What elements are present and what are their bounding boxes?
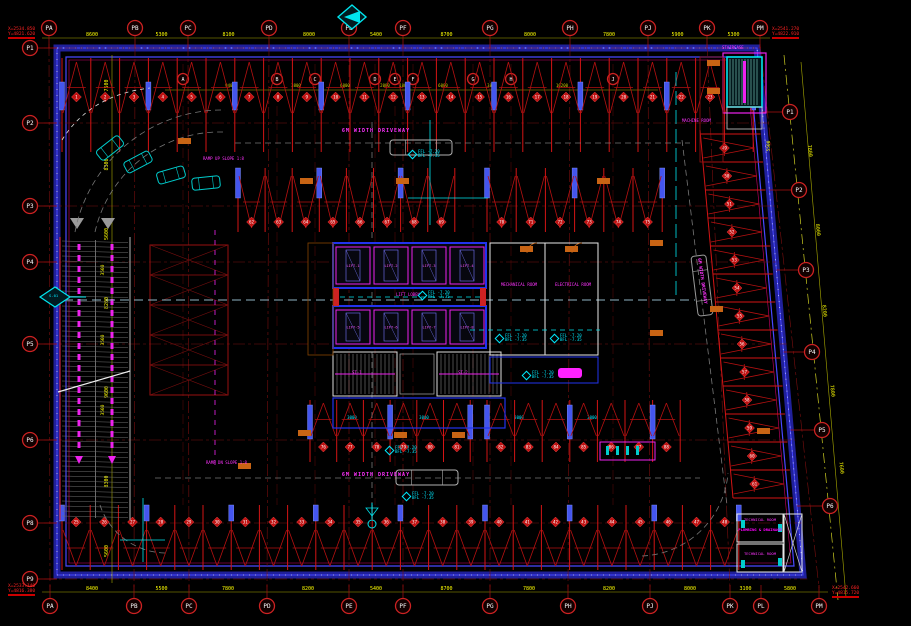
label: 86 xyxy=(609,445,615,450)
label: 8200 xyxy=(603,586,615,592)
car-window xyxy=(696,299,711,301)
label: 62 xyxy=(249,220,255,225)
label: 57 xyxy=(742,370,748,375)
label: P9 xyxy=(26,576,34,583)
label: 8200 xyxy=(302,586,314,592)
label: PK xyxy=(703,25,711,32)
turning-arc xyxy=(75,110,225,232)
door-mark xyxy=(298,430,311,436)
ramp-tread xyxy=(62,416,128,418)
ramp-tread xyxy=(62,246,128,248)
label: PM xyxy=(756,25,764,32)
ramp-tread xyxy=(62,396,128,398)
label: 59 xyxy=(747,426,753,431)
car-body xyxy=(390,140,452,155)
column xyxy=(578,82,583,110)
label: PG xyxy=(486,603,494,610)
column xyxy=(664,82,669,110)
ramp-arrow-dash xyxy=(78,420,81,426)
label: P1 xyxy=(786,109,794,116)
label: 75 xyxy=(645,220,651,225)
ramp-arrow-dash xyxy=(111,431,114,437)
ramp-tread xyxy=(62,316,128,318)
label: 23 xyxy=(707,95,713,100)
ramp-arrow-dash xyxy=(78,365,81,371)
label: 5500 xyxy=(766,140,772,151)
ramp-tread xyxy=(62,476,128,478)
label: 44 xyxy=(609,520,615,525)
ramp-tread xyxy=(62,401,128,403)
ramp-tread xyxy=(62,251,128,253)
grid-line-PA xyxy=(49,44,50,588)
label: 53 xyxy=(732,258,738,263)
ramp-tread xyxy=(62,391,128,393)
label: 8200 xyxy=(820,305,827,318)
label: 84 xyxy=(553,445,559,450)
label: 3500 xyxy=(100,334,106,345)
grid-line-PC xyxy=(188,44,189,588)
label: 78 xyxy=(374,445,380,450)
label: 28 xyxy=(158,520,164,525)
ramp-arrow-dash xyxy=(78,310,81,316)
ramp-tread xyxy=(62,326,128,328)
label: 70 xyxy=(499,220,505,225)
label: P8 xyxy=(26,520,34,527)
door-mark xyxy=(520,246,533,252)
label: PB xyxy=(130,603,138,610)
hatch xyxy=(706,166,757,176)
grid-line-PJ xyxy=(648,44,650,588)
label: 5900 xyxy=(671,32,683,38)
label: 71 xyxy=(528,220,534,225)
ramp-tread xyxy=(62,361,128,363)
pump-room-block xyxy=(700,57,723,162)
label: PH xyxy=(566,25,574,32)
hatch xyxy=(708,194,759,204)
fixture xyxy=(636,446,639,455)
ramp-arrow-dash xyxy=(111,288,114,294)
car-window xyxy=(112,139,119,148)
hatch xyxy=(703,148,754,158)
label: 21 xyxy=(650,95,656,100)
label: 11 xyxy=(362,95,368,100)
ramp-tread xyxy=(62,481,128,483)
cad-viewport[interactable]: 8600530081008000540087008000780059005300… xyxy=(0,0,911,626)
label: PF xyxy=(399,25,407,32)
car-symbol xyxy=(191,176,220,191)
label: 5600 xyxy=(104,228,110,240)
label: 10 xyxy=(333,95,339,100)
label: 37 xyxy=(412,520,418,525)
label: 20 xyxy=(621,95,627,100)
label: 3500 xyxy=(100,404,106,415)
fixture xyxy=(741,520,745,528)
label: 8700 xyxy=(440,586,452,592)
label: 48 xyxy=(722,520,728,525)
door-mark xyxy=(650,240,663,246)
column xyxy=(60,82,65,110)
turning-arc xyxy=(95,132,223,232)
label: PF xyxy=(399,603,407,610)
stair-landing xyxy=(727,107,762,129)
label: PK xyxy=(726,603,734,610)
storage-lattice xyxy=(150,245,228,395)
column xyxy=(405,82,410,110)
car-symbol xyxy=(156,165,186,184)
ramp-arrow-dash xyxy=(111,244,114,250)
hatch xyxy=(721,344,772,354)
hatch xyxy=(734,474,784,484)
ramp-tread xyxy=(62,501,128,503)
jamb xyxy=(480,288,486,306)
column xyxy=(567,505,572,521)
label: PD xyxy=(265,25,273,32)
label: 3100 xyxy=(739,586,751,592)
label: 8600 xyxy=(86,32,98,38)
ramp-arrow-dash xyxy=(111,266,114,272)
hatch xyxy=(724,362,775,372)
label: PC xyxy=(185,603,193,610)
ramp-arrow-dash xyxy=(111,442,114,448)
car-symbol xyxy=(396,470,458,485)
ramp-tread xyxy=(62,241,128,243)
car-body xyxy=(396,470,458,485)
door-mark xyxy=(710,306,723,312)
label: 5800 xyxy=(784,586,796,592)
label: 5600 xyxy=(104,545,110,557)
label: PB xyxy=(131,25,139,32)
service-shafts xyxy=(308,243,333,355)
label: 79 xyxy=(401,445,407,450)
label: 76 xyxy=(321,445,327,450)
label: PJ xyxy=(644,25,651,32)
label: 52 xyxy=(729,230,735,235)
label: 39 xyxy=(468,520,474,525)
label: P4 xyxy=(808,349,816,356)
ramp-arrow-dash xyxy=(111,343,114,349)
column xyxy=(398,505,403,521)
label: 16 xyxy=(506,95,512,100)
label: 63 xyxy=(276,220,282,225)
label: 65 xyxy=(330,220,336,225)
ramp-tread xyxy=(62,431,128,433)
ramp-arrow-dash xyxy=(78,277,81,283)
door-mark xyxy=(300,178,313,184)
label: 22 xyxy=(679,95,685,100)
hatch xyxy=(706,176,757,186)
ramp-arrow-dash xyxy=(78,442,81,448)
ramp-tread xyxy=(62,436,128,438)
parking-row-inner-bottom-b: 82838485868788 xyxy=(485,400,681,462)
label: 64 xyxy=(303,220,309,225)
label: 85 xyxy=(581,445,587,450)
ramp-tread xyxy=(62,331,128,333)
ramp-arrow-dash xyxy=(111,321,114,327)
label: 8000 xyxy=(814,224,821,237)
ramp-tread xyxy=(62,341,128,343)
ramp-tread xyxy=(62,271,128,273)
door-mark xyxy=(565,246,578,252)
label: 50 xyxy=(724,174,730,179)
ramp-tread xyxy=(62,366,128,368)
ramp-arrow-dash xyxy=(78,409,81,415)
ramp-arrow-dash xyxy=(111,310,114,316)
centerline-right xyxy=(682,140,727,505)
ramp-tread xyxy=(62,266,128,268)
ramp-tread xyxy=(62,496,128,498)
label: 7800 xyxy=(828,385,835,398)
ramp-tread xyxy=(62,461,128,463)
label: 74 xyxy=(616,220,622,225)
ramp-arrow-dash xyxy=(111,277,114,283)
car-symbol xyxy=(691,255,713,316)
label: 42 xyxy=(553,520,559,525)
door-mark xyxy=(396,178,409,184)
ramp-arrow-dash xyxy=(78,343,81,349)
label: D xyxy=(373,77,376,83)
ramp-arrow-dash xyxy=(78,255,81,261)
ramp-tread xyxy=(62,301,128,303)
ramp-tread xyxy=(62,471,128,473)
label: 56 xyxy=(739,342,745,347)
label: P2 xyxy=(795,187,803,194)
ramp-tread xyxy=(62,321,128,323)
label: 19 xyxy=(592,95,598,100)
ramp-arrow-dash xyxy=(78,387,81,393)
door-mark xyxy=(650,330,663,336)
label: 35 xyxy=(356,520,362,525)
label: 82 xyxy=(498,445,504,450)
hatch xyxy=(726,390,776,400)
column xyxy=(485,168,490,198)
label: 38 xyxy=(440,520,446,525)
car-window xyxy=(163,171,166,183)
label: PM xyxy=(815,603,823,610)
label: 72 xyxy=(557,220,563,225)
label: 8000 xyxy=(303,32,315,38)
car-window xyxy=(176,167,179,179)
label: 60 xyxy=(750,454,756,459)
label: 81 xyxy=(454,445,460,450)
label: 5300 xyxy=(155,32,167,38)
label: PC xyxy=(184,25,192,32)
basement-floor-plan: 8600530081008000540087008000780059005300… xyxy=(0,0,911,626)
label: P6 xyxy=(26,437,34,444)
hatch xyxy=(729,428,779,438)
label: 67 xyxy=(385,220,391,225)
door-mark xyxy=(757,428,770,434)
label: E xyxy=(393,77,396,83)
column xyxy=(660,168,665,198)
label: 69 xyxy=(439,220,445,225)
car-window xyxy=(212,176,213,188)
hatch xyxy=(718,306,769,316)
car-body xyxy=(95,135,124,162)
label: 40 xyxy=(497,520,503,525)
label: 26 xyxy=(102,520,108,525)
core-corridor xyxy=(333,398,505,428)
fixture xyxy=(606,446,609,455)
hatch xyxy=(711,222,762,232)
door-mark xyxy=(707,60,720,66)
label: LIFT-1 xyxy=(347,264,360,268)
label: 55 xyxy=(737,314,743,319)
label: F xyxy=(411,77,414,83)
ramp-tread xyxy=(62,311,128,313)
car-symbol xyxy=(95,135,124,162)
label: LIFT-2 xyxy=(385,264,398,268)
ramp-arrow-dash xyxy=(111,409,114,415)
car-body xyxy=(156,165,186,184)
column xyxy=(319,82,324,110)
hatch xyxy=(716,288,767,298)
ramp-arrow-dash xyxy=(111,365,114,371)
ramp-tread xyxy=(62,336,128,338)
label: 46 xyxy=(666,520,672,525)
column xyxy=(317,168,322,198)
car-symbol xyxy=(390,140,452,155)
label: 7600 xyxy=(837,462,844,475)
label: C xyxy=(313,77,316,83)
label: 5400 xyxy=(370,586,382,592)
label: P3 xyxy=(26,203,34,210)
parking-row-inner-top-b: 707172737475 xyxy=(485,168,665,232)
ramp-arrow-dash xyxy=(78,398,81,404)
column xyxy=(229,505,234,521)
ramp-tread xyxy=(62,291,128,293)
ramp-tread xyxy=(62,406,128,408)
hatch xyxy=(734,484,784,494)
label: LIFT-3 xyxy=(423,264,436,268)
label: 3500 xyxy=(100,264,106,275)
car-body xyxy=(691,255,713,316)
label: 34 xyxy=(327,520,333,525)
label: 73 xyxy=(587,220,593,225)
grid-line-right-slant xyxy=(784,55,838,600)
ramp-entry-arrow xyxy=(70,218,84,229)
label: PG xyxy=(486,25,494,32)
ramp-arrow-dash xyxy=(111,387,114,393)
label: 51 xyxy=(727,202,733,207)
fixture xyxy=(778,524,782,532)
label: 8100 xyxy=(222,32,234,38)
ramp-arrow-dash xyxy=(78,332,81,338)
ramp-tread xyxy=(62,276,128,278)
label: LIFT-8 xyxy=(461,326,474,330)
ramp-arrow-head xyxy=(75,456,83,464)
label: 36 xyxy=(384,520,390,525)
stair-rail xyxy=(743,61,746,103)
column xyxy=(483,505,488,521)
label: 14 xyxy=(448,95,454,100)
label: P4 xyxy=(26,259,34,266)
ramp-arrow-head xyxy=(108,456,116,464)
label: P2 xyxy=(26,120,34,127)
parking-row-bottom: 2526272829303132333435363738394041424344… xyxy=(60,505,742,570)
ramp-arrow-dash xyxy=(78,288,81,294)
ramp-tread xyxy=(62,346,128,348)
label: 7800 xyxy=(603,32,615,38)
ramp-tread xyxy=(62,356,128,358)
label: 68 xyxy=(412,220,418,225)
fixture xyxy=(778,558,782,566)
label: LIFT-6 xyxy=(385,326,398,330)
ramp-tread xyxy=(62,376,128,378)
label: 7800 xyxy=(523,586,535,592)
label: 7800 xyxy=(806,145,813,158)
stall-edge-line xyxy=(700,130,733,498)
label: 27 xyxy=(130,520,136,525)
label: 8000 xyxy=(524,32,536,38)
label: 66 xyxy=(357,220,363,225)
label: 30 xyxy=(215,520,221,525)
ramp-tread xyxy=(62,466,128,468)
hatch xyxy=(713,250,764,260)
label: P1 xyxy=(26,45,34,52)
label: 77 xyxy=(348,445,354,450)
ramp-tread xyxy=(62,441,128,443)
hatch xyxy=(708,204,759,214)
hatch xyxy=(731,446,781,456)
car-window xyxy=(693,270,708,272)
hatch xyxy=(716,278,767,288)
ramp-arrow-dash xyxy=(78,266,81,272)
label: 7500 xyxy=(104,79,110,91)
label: 18 xyxy=(563,95,569,100)
grid-line-PD xyxy=(267,44,269,588)
plant-rooms xyxy=(490,243,598,355)
ramp-arrow-dash xyxy=(111,255,114,261)
label: 8400 xyxy=(86,586,98,592)
ramp-arrow-dash xyxy=(111,354,114,360)
ramp-arrow-dash xyxy=(111,420,114,426)
label: P6 xyxy=(826,503,834,510)
label: PL xyxy=(757,603,765,610)
ramp-arrow-dash xyxy=(78,376,81,382)
column xyxy=(236,168,241,198)
hatch xyxy=(729,418,779,428)
ramp-tread xyxy=(62,386,128,388)
shaft xyxy=(400,354,434,394)
label: 5500 xyxy=(155,586,167,592)
label: 54 xyxy=(734,286,740,291)
hatch xyxy=(731,456,781,466)
hatch xyxy=(718,316,769,326)
ramp-arrow-dash xyxy=(78,354,81,360)
highlight-magenta xyxy=(558,368,582,378)
ramp-tread xyxy=(62,456,128,458)
label: 8700 xyxy=(440,32,452,38)
ramp-arrow-dash xyxy=(78,244,81,250)
label: 8000 xyxy=(684,586,696,592)
label: 13 xyxy=(419,95,425,100)
label: LIFT-4 xyxy=(461,264,474,268)
hatch xyxy=(711,232,762,242)
door-mark xyxy=(238,463,251,469)
ramp-tread xyxy=(62,371,128,373)
label: 80 xyxy=(428,445,434,450)
column xyxy=(144,505,149,521)
column xyxy=(146,82,151,110)
label: 32 xyxy=(271,520,277,525)
hatch xyxy=(721,334,772,344)
ramp-tread xyxy=(62,421,128,423)
label: 61 xyxy=(752,482,758,487)
label: PH xyxy=(564,603,572,610)
parking-row-inner-bottom-a: 767778798081 xyxy=(308,400,473,462)
building-core: LIFT-1LIFT-2LIFT-3LIFT-4LIFT-5LIFT-6LIFT… xyxy=(308,243,600,428)
ramp-tread xyxy=(62,256,128,258)
